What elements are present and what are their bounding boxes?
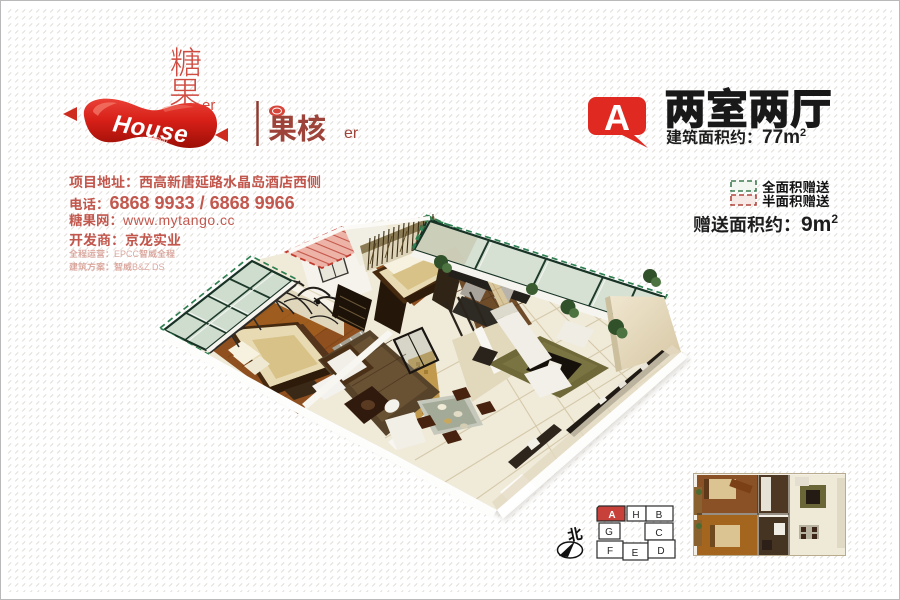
svg-text:糖果网：www.mytango.cc: 糖果网：www.mytango.cc (69, 209, 235, 229)
svg-text:F: F (607, 546, 613, 557)
svg-text:A: A (604, 97, 630, 138)
svg-text:H: H (632, 510, 639, 521)
svg-text:全程运营：EPCC智威全程: 全程运营：EPCC智威全程 (69, 247, 175, 260)
svg-text:赠送面积约：9m2: 赠送面积约：9m2 (693, 211, 838, 237)
svg-text:建筑面积约：77m2: 建筑面积约：77m2 (666, 124, 806, 148)
svg-text:果核: 果核 (268, 106, 326, 148)
svg-text:C: C (655, 528, 662, 539)
svg-text:半面积赠送: 半面积赠送 (762, 190, 830, 210)
svg-text:E: E (632, 548, 639, 559)
svg-text:建筑方案：智威B&Z DS: 建筑方案：智威B&Z DS (69, 260, 165, 273)
svg-text:A: A (608, 510, 615, 521)
svg-text:B: B (656, 510, 663, 521)
svg-text:er: er (344, 125, 359, 142)
svg-text:D: D (657, 546, 664, 557)
svg-text:项目地址：西高新唐延路水晶岛酒店西侧: 项目地址：西高新唐延路水晶岛酒店西侧 (69, 172, 321, 192)
svg-text:G: G (605, 527, 613, 538)
